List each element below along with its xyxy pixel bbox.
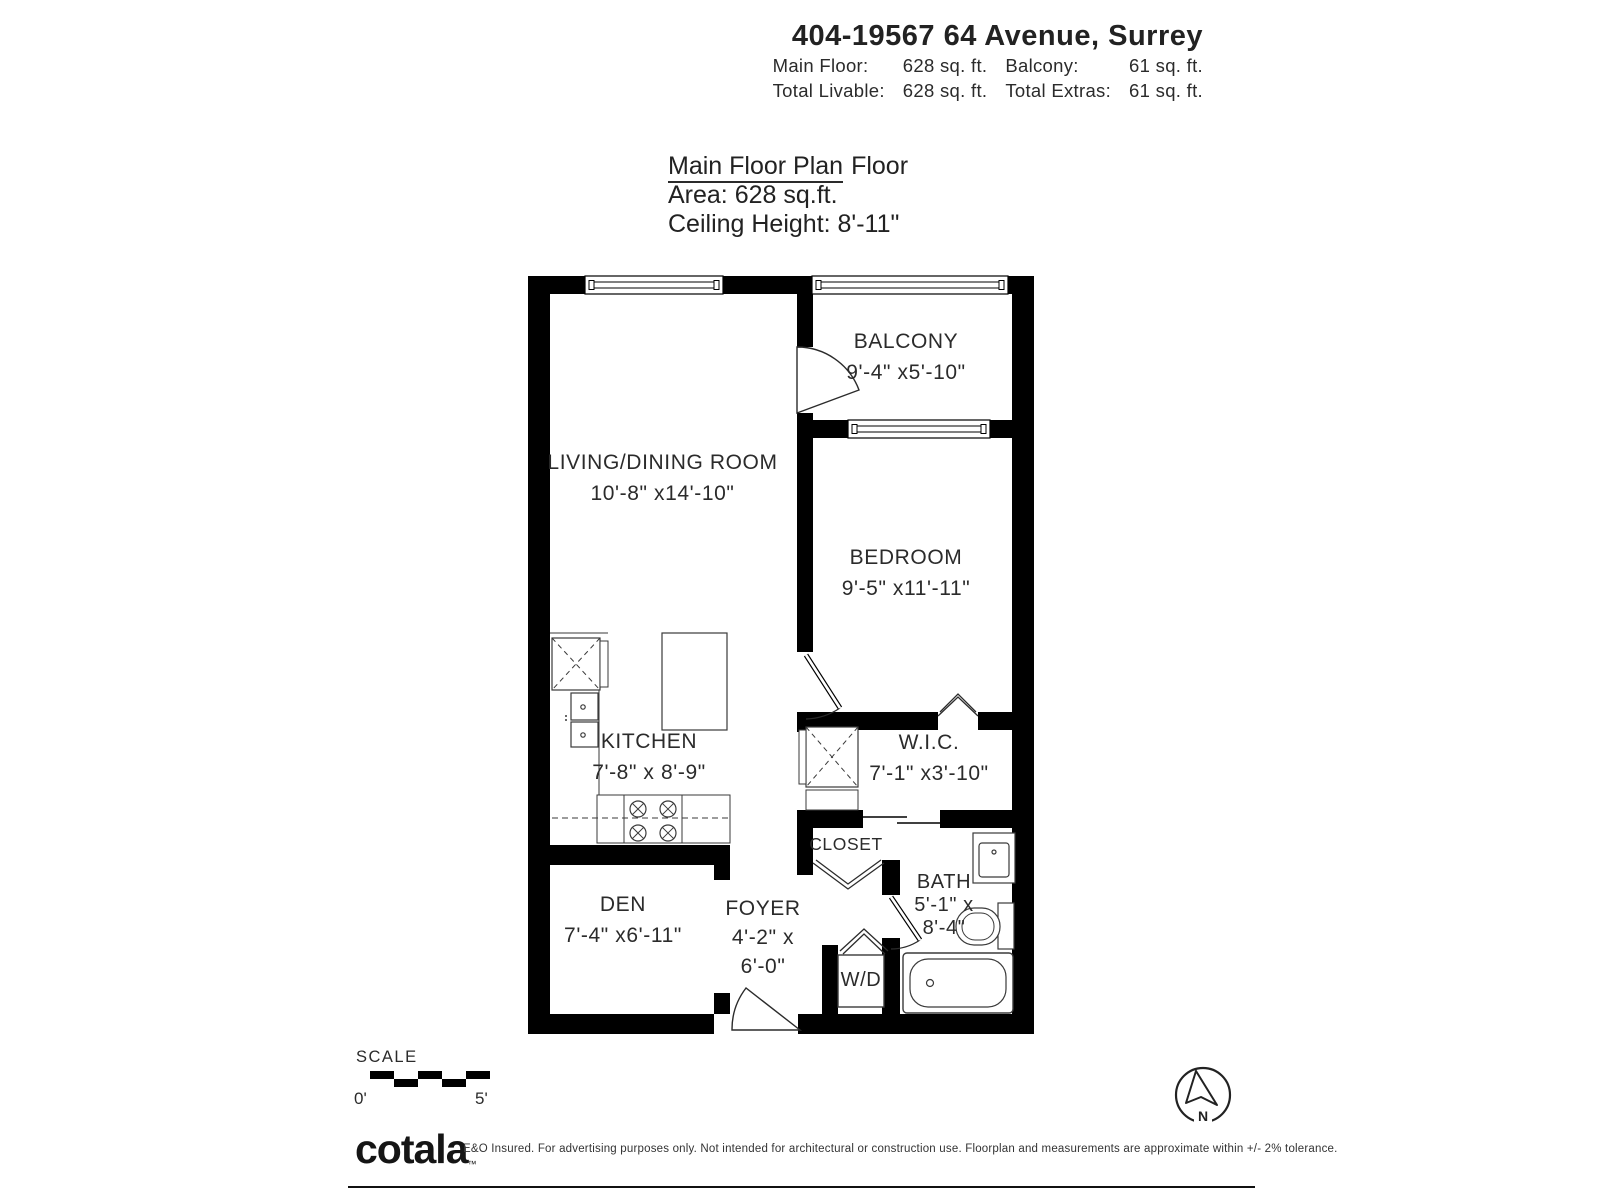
plan-title-block: Main Floor PlanFloor Area: 628 sq.ft. Ce… (668, 152, 908, 239)
room-label-laundry: W/D (836, 967, 886, 994)
room-dims: 7'-8" x 8'-9" (558, 757, 740, 788)
room-dims: 7'-1" x3'-10" (838, 758, 1020, 789)
scale-label: SCALE (356, 1048, 418, 1067)
scale-segment (394, 1079, 418, 1087)
room-dims: 10'-8" x14'-10" (540, 478, 785, 509)
floorplan-page: 404-19567 64 Avenue, Surrey Main Floor: … (0, 0, 1600, 1200)
laundry-bifold-icon (840, 929, 888, 954)
room-label-bath: BATH 5'-1" x 8'-4" (892, 871, 996, 940)
bottom-divider (348, 1186, 1255, 1188)
stat-value: 628 sq. ft. (903, 80, 988, 102)
stove-icon (597, 795, 730, 843)
room-dims: 4'-2" x (704, 923, 822, 952)
stat-label: Main Floor: (773, 55, 885, 77)
scale-segment (442, 1079, 466, 1087)
scale-segment (466, 1071, 490, 1079)
plan-area-line: Area: 628 sq.ft. (668, 181, 908, 210)
room-dims: 9'-4" x5'-10" (810, 357, 1002, 388)
plan-title-line1: Main Floor PlanFloor (668, 152, 908, 181)
room-label-living: LIVING/DINING ROOM 10'-8" x14'-10" (540, 447, 785, 509)
room-name: DEN (528, 889, 718, 920)
plan-ceiling-line: Ceiling Height: 8'-11" (668, 210, 908, 239)
room-dims: 9'-5" x11'-11" (810, 573, 1002, 604)
north-letter: N (1194, 1108, 1212, 1124)
plan-title-underlined: Main Floor Plan (668, 152, 843, 183)
island-counter-icon (662, 633, 727, 730)
room-name: FOYER (704, 894, 822, 923)
trademark-mark: ™ (468, 1159, 476, 1169)
room-name: LIVING/DINING ROOM (540, 447, 785, 478)
stat-value: 628 sq. ft. (903, 55, 988, 77)
stat-value: 61 sq. ft. (1129, 80, 1203, 102)
room-label-balcony: BALCONY 9'-4" x5'-10" (810, 326, 1002, 388)
brand-logo: cotala™ (355, 1126, 476, 1173)
room-label-foyer: FOYER 4'-2" x 6'-0" (704, 894, 822, 981)
north-compass-icon (1160, 1052, 1250, 1142)
scale-end: 5' (475, 1089, 488, 1109)
closet-bifold-icon (813, 860, 884, 889)
room-label-bedroom: BEDROOM 9'-5" x11'-11" (810, 542, 1002, 604)
room-name: BALCONY (810, 326, 1002, 357)
entry-door-icon (732, 988, 800, 1030)
bathtub-icon (903, 953, 1013, 1013)
area-stats: Main Floor: 628 sq. ft. Balcony: 61 sq. … (773, 55, 1203, 102)
balcony-railing-window-icon (812, 276, 1008, 294)
stat-label: Balcony: (1005, 55, 1111, 77)
bedroom-window-icon (848, 420, 990, 438)
disclaimer-text: E&O Insured. For advertising purposes on… (463, 1143, 1338, 1155)
room-name: KITCHEN (558, 726, 740, 757)
stat-label: Total Extras: (1005, 80, 1111, 102)
room-name: BATH (892, 871, 996, 894)
scale-start: 0' (354, 1089, 367, 1109)
room-dims: 7'-4" x6'-11" (528, 920, 718, 951)
room-dims: 6'-0" (704, 952, 822, 981)
room-label-kitchen: KITCHEN 7'-8" x 8'-9" (558, 726, 740, 788)
stat-value: 61 sq. ft. (1129, 55, 1203, 77)
fridge-icon (550, 633, 608, 690)
room-label-wic: W.I.C. 7'-1" x3'-10" (838, 727, 1020, 789)
plan-title-rest: Floor (851, 152, 908, 180)
stat-label: Total Livable: (773, 80, 885, 102)
room-label-den: DEN 7'-4" x6'-11" (528, 889, 718, 951)
living-window-icon (585, 276, 723, 294)
room-name: W.I.C. (838, 727, 1020, 758)
room-name: W/D (836, 967, 886, 994)
scale-segment (370, 1071, 394, 1079)
room-dims: 5'-1" x (892, 894, 996, 917)
room-name: CLOSET (800, 834, 892, 855)
room-label-closet: CLOSET (800, 834, 892, 855)
bedroom-door-icon (806, 655, 840, 719)
room-dims: 8'-4" (892, 917, 996, 940)
sliding-door-icon (863, 811, 940, 827)
scale-segment (418, 1071, 442, 1079)
page-title: 404-19567 64 Avenue, Surrey (792, 20, 1203, 53)
room-name: BEDROOM (810, 542, 1002, 573)
wic-bifold-icon (938, 694, 978, 716)
brand-text: cotala (355, 1126, 468, 1172)
